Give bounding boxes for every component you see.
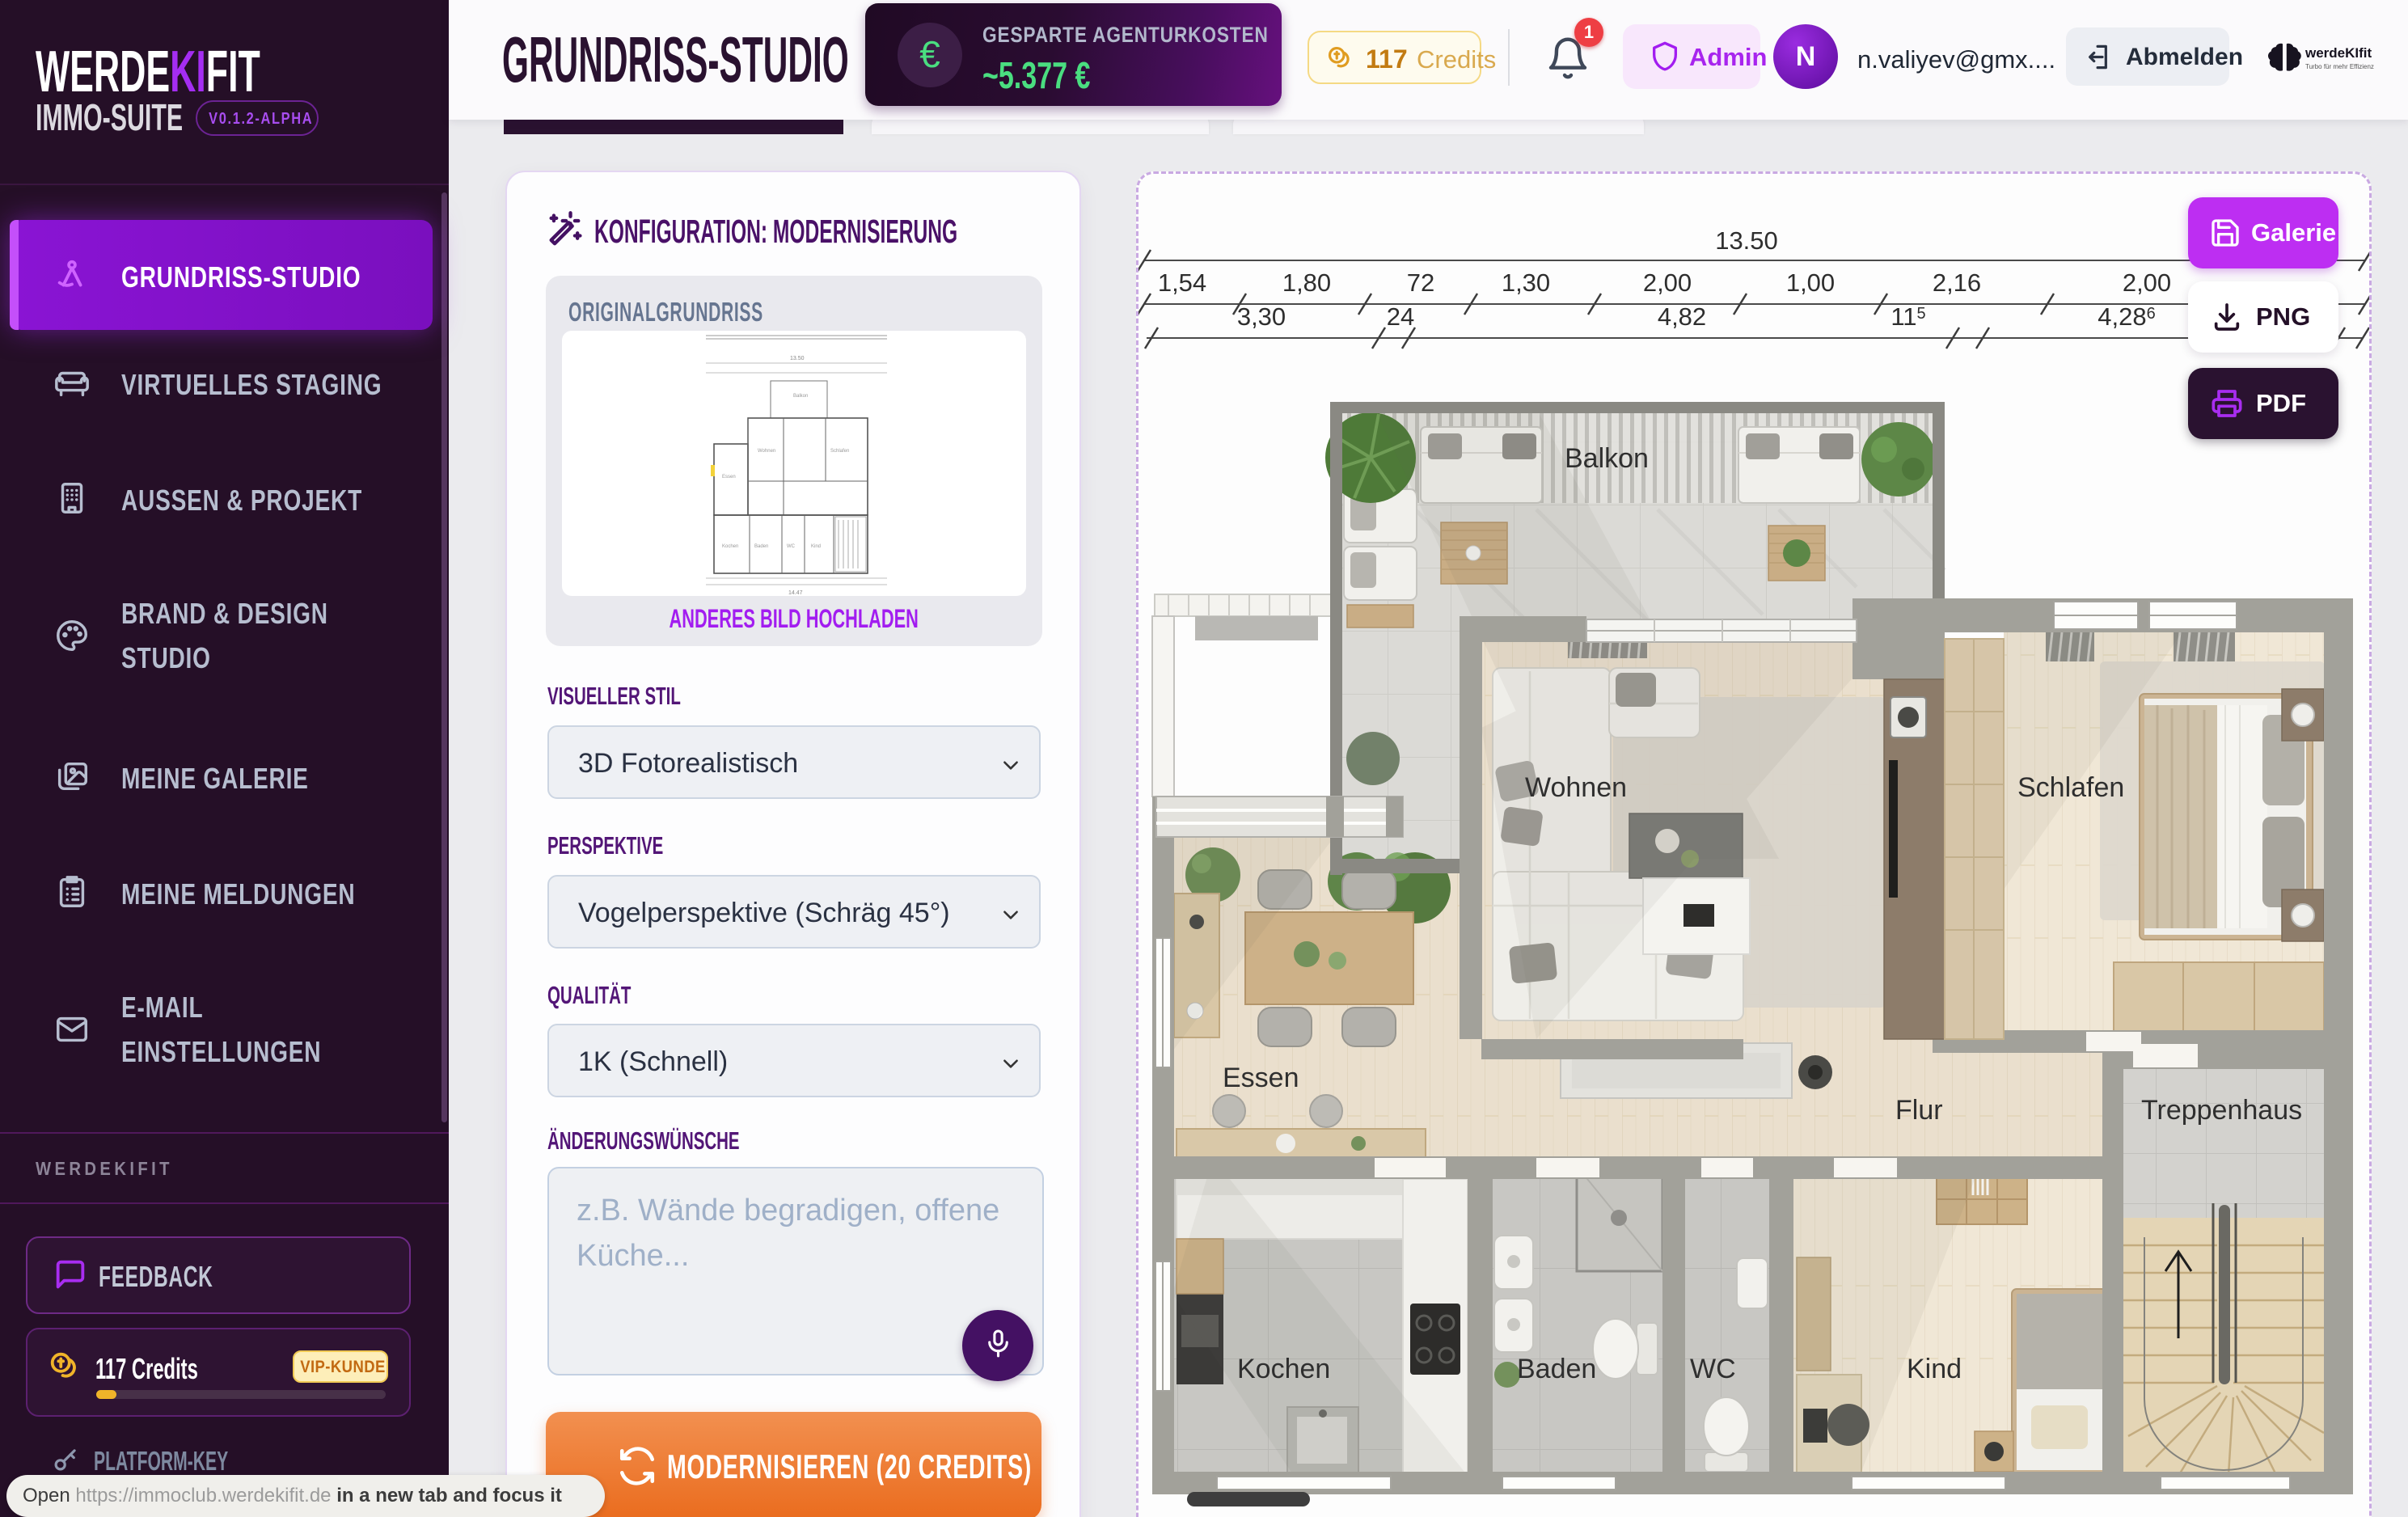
svg-text:2,00: 2,00 [2123,268,2171,297]
svg-text:4,286: 4,286 [2097,302,2155,331]
svg-text:Kind: Kind [1907,1354,1962,1384]
svg-text:13.50: 13.50 [790,356,805,361]
svg-text:1,00: 1,00 [1786,268,1835,297]
svg-text:Balkon: Balkon [793,394,808,399]
svg-text:Treppenhaus: Treppenhaus [2141,1095,2302,1126]
svg-text:72: 72 [1407,268,1434,297]
svg-text:Schlafen: Schlafen [2017,772,2124,803]
svg-text:1,54: 1,54 [1158,268,1206,297]
svg-text:Schlafen: Schlafen [830,449,849,454]
svg-text:Baden: Baden [1517,1354,1596,1384]
svg-text:Baden: Baden [754,544,768,549]
svg-text:13.50: 13.50 [1715,226,1778,255]
svg-text:2,16: 2,16 [1933,268,1981,297]
svg-text:2,00: 2,00 [1643,268,1692,297]
svg-text:WC: WC [787,544,796,549]
svg-text:Wohnen: Wohnen [1525,772,1627,803]
svg-text:4,82: 4,82 [1658,302,1706,331]
svg-text:Wohnen: Wohnen [758,449,775,454]
svg-text:Kind: Kind [811,544,821,549]
svg-text:Kochen: Kochen [1237,1354,1330,1384]
svg-text:1,30: 1,30 [1502,268,1550,297]
svg-text:WC: WC [1690,1354,1736,1384]
svg-text:Balkon: Balkon [1565,443,1649,474]
svg-text:115: 115 [1890,302,1925,331]
svg-text:Essen: Essen [1223,1063,1299,1093]
svg-text:Flur: Flur [1895,1095,1943,1126]
svg-text:3,30: 3,30 [1237,302,1286,331]
svg-text:Kochen: Kochen [722,544,738,549]
svg-text:1,80: 1,80 [1282,268,1331,297]
svg-text:14.47: 14.47 [788,590,803,596]
svg-text:24: 24 [1387,302,1414,331]
svg-text:Essen: Essen [722,475,736,480]
